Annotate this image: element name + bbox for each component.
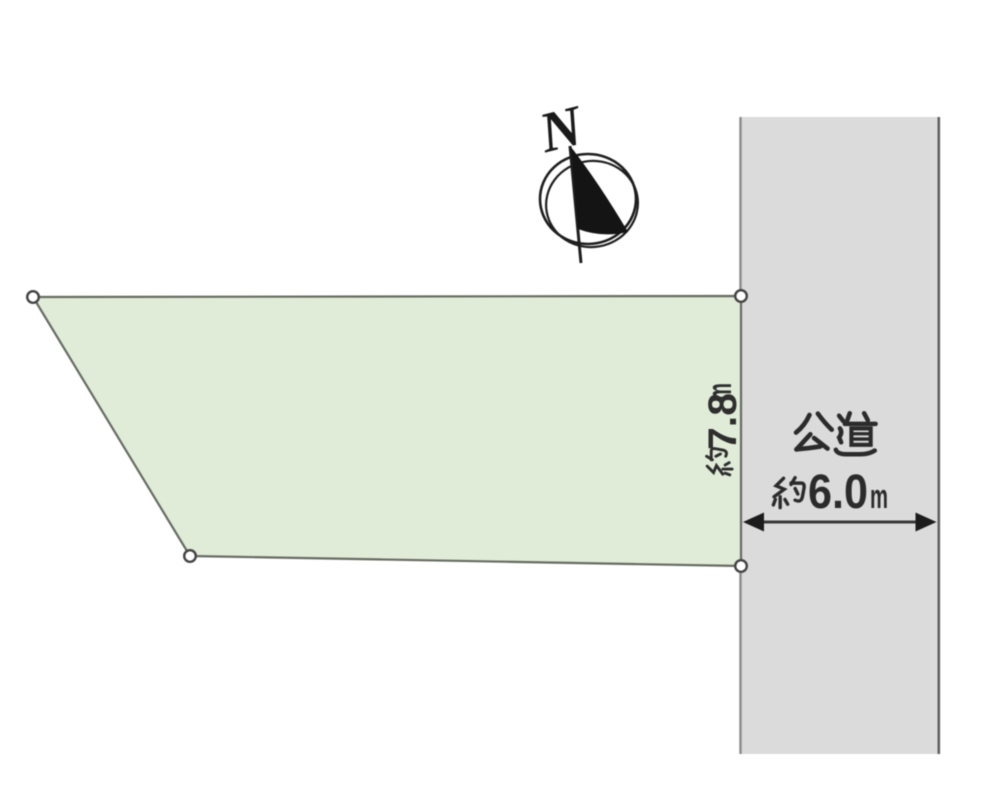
svg-text:m: m [870,478,888,516]
svg-text:6.0: 6.0 [808,466,868,519]
svg-text:m: m [701,383,739,401]
